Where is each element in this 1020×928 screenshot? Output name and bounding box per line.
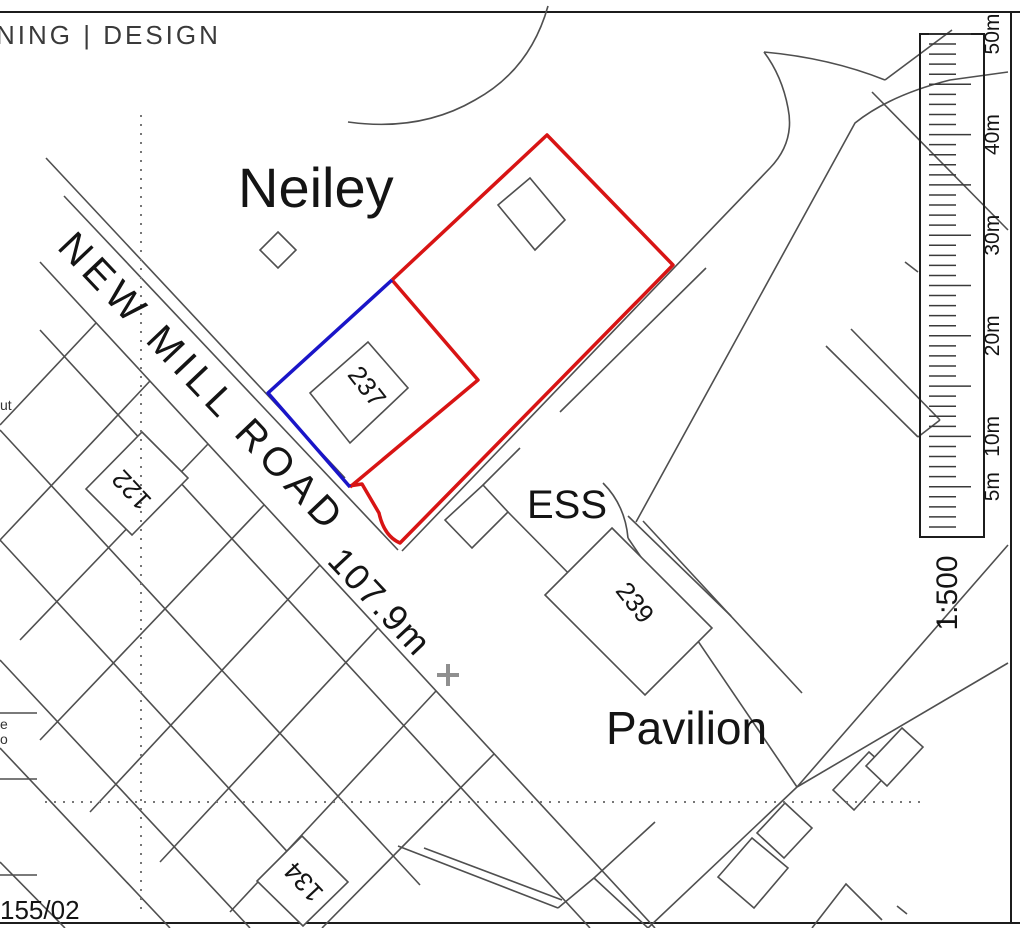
scale-bar-ticks — [929, 34, 971, 527]
spot-height-label: 107.9m — [320, 539, 440, 664]
clipped-text-o: o — [0, 731, 8, 747]
drawing-ref-label: 155/02 — [0, 895, 80, 925]
scale-tick-label: 10m — [981, 416, 1004, 457]
scale-tick-label: 30m — [981, 215, 1004, 256]
scale-tick-label: 40m — [981, 114, 1004, 155]
substation-label: ESS — [527, 483, 607, 527]
scale-tick-label: 50m — [981, 14, 1004, 55]
site-plan-drawing: NING | DESIGN Neiley NEW MILL ROAD 107.9… — [0, 0, 1020, 928]
scale-bar: 5m10m20m30m40m50m 1:500 — [920, 14, 1004, 631]
site-plan: NING | DESIGN Neiley NEW MILL ROAD 107.9… — [0, 0, 1020, 928]
grid-cross-marker — [437, 664, 459, 686]
building-ess — [445, 485, 508, 548]
scale-tick-label: 5m — [981, 472, 1004, 501]
brand-text: NING | DESIGN — [0, 20, 221, 50]
pavilion-label: Pavilion — [606, 702, 767, 754]
building-neiley-small — [260, 232, 296, 268]
building-outlines — [86, 178, 923, 926]
clipped-text-e: e — [0, 716, 8, 732]
clipped-text-ut: ut — [0, 397, 12, 413]
scale-ratio-label: 1:500 — [931, 555, 964, 630]
area-name-label: Neiley — [238, 156, 394, 219]
scale-tick-label: 20m — [981, 315, 1004, 356]
building-in-site — [498, 178, 565, 250]
